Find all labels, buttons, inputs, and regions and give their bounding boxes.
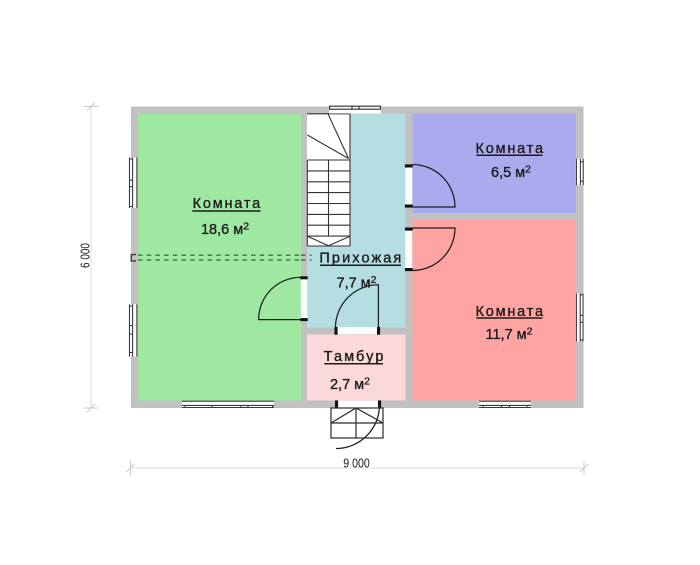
svg-text:7,7 м2: 7,7 м2	[337, 274, 377, 292]
svg-text:6,5 м2: 6,5 м2	[491, 164, 531, 182]
svg-text:Тамбур: Тамбур	[324, 349, 386, 365]
svg-text:2,7 м2: 2,7 м2	[330, 376, 370, 394]
svg-text:11,7 м2: 11,7 м2	[486, 326, 533, 344]
svg-text:9 000: 9 000	[343, 456, 370, 471]
svg-text:Комната: Комната	[193, 196, 262, 212]
svg-text:6 000: 6 000	[78, 243, 93, 268]
svg-text:18,6 м2: 18,6 м2	[201, 221, 249, 239]
svg-text:Прихожая: Прихожая	[319, 251, 403, 267]
